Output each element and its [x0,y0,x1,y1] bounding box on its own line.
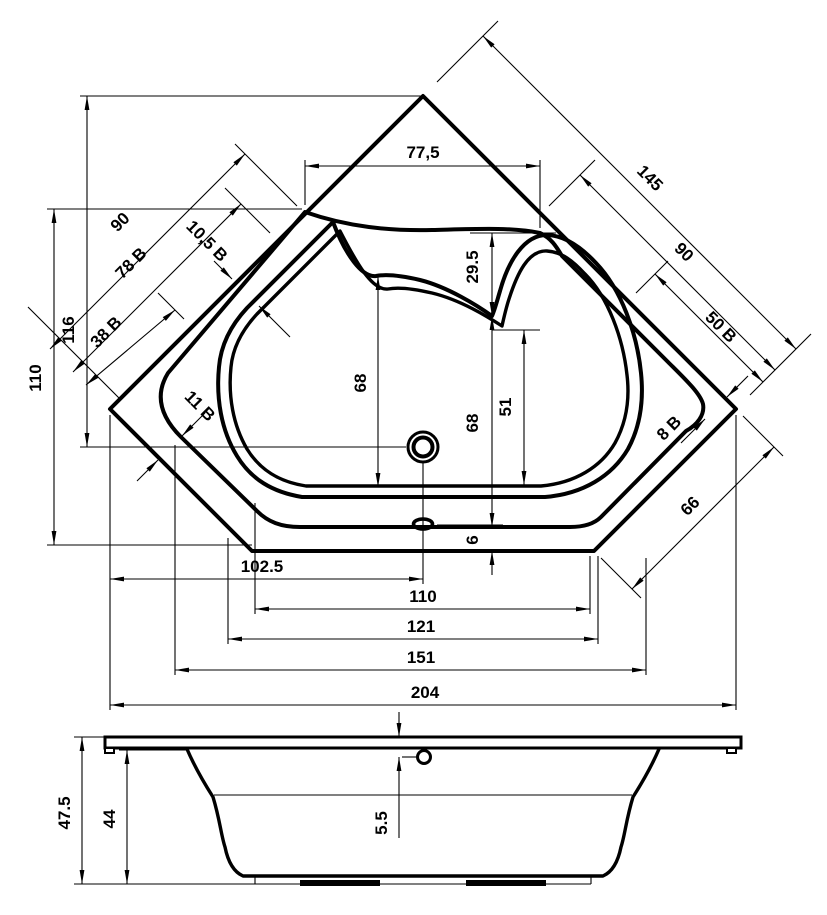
dim-shell-width: 121 [228,617,598,639]
dim-overflow-drop: 5.5 [372,712,399,838]
dim-label-overall-width: 204 [411,683,440,702]
base [255,877,591,886]
dim-inner-width: 151 [175,648,646,670]
dim-lobe-to-saddle: 29.5 [463,233,492,316]
shell-contour [161,212,704,527]
dim-drain-offset-x: 102.5 [110,557,423,579]
dim-label-left-edge-38: 38 B [87,313,126,352]
dim-label-neck-to-bottom: 110 [26,364,45,391]
body-profile [187,749,659,876]
dim-apex-to-drain: 116 [59,96,87,447]
drawing-sheet: 77,5 145 90 50 B 8 B 66 90 78 [0,0,827,915]
dim-top-span: 77,5 [305,143,540,166]
dim-label-saddle-to-base: 68 [463,414,482,433]
dim-label-well-width: 110 [409,587,436,606]
dim-label-shell-height: 44 [100,809,119,828]
dim-label-shell-width: 121 [407,617,435,636]
dim-label-base-offset: 6 [463,535,482,544]
drain [408,432,438,462]
dim-lower-right-edge: 66 [632,447,774,589]
side-drain [402,751,431,764]
dim-overall-width: 204 [110,683,736,705]
dim-label-top-span: 77,5 [406,143,439,162]
dim-label-left-edge-90: 90 [107,209,134,236]
dim-total-height: 47.5 [55,737,82,884]
dim-label-lobe-to-saddle: 29.5 [463,250,482,283]
dim-label-total-height: 47.5 [55,796,74,829]
plan-view: 77,5 145 90 50 B 8 B 66 90 78 [26,21,811,710]
dim-label-right-edge-50: 50 B [701,308,740,347]
dim-right-edge-total: 145 [483,36,796,349]
dim-label-inner-width: 151 [407,648,435,667]
dim-label-apex-to-drain: 116 [59,316,78,343]
well-inner-contour [230,231,628,486]
dim-label-overflow-drop: 5.5 [372,811,391,835]
side-view: 47.5 44 5.5 [55,712,741,886]
dim-label-left-gap-10-5: 10,5 B [182,217,231,266]
technical-drawing: 77,5 145 90 50 B 8 B 66 90 78 [0,0,827,915]
dim-label-well-left-depth: 68 [351,374,370,393]
dim-neck-to-bottom: 110 [26,209,54,545]
dim-label-lower-right-edge: 66 [677,493,704,520]
dim-label-right-edge-total: 145 [633,161,666,194]
dim-label-seat-to-bottom: 51 [496,398,515,417]
dim-right-edge-90: 90 [580,175,775,370]
dim-shell-height: 44 [100,750,127,884]
dim-base-offset: 6 [463,535,492,575]
dim-label-left-edge-78: 78 B [112,244,151,283]
dim-left-edge-38: 38 B [86,310,175,385]
dim-label-drain-offset-x: 102.5 [241,557,284,576]
dim-seat-to-bottom: 51 [496,330,524,485]
dim-well-width: 110 [255,587,590,609]
dim-label-left-gap-11: 11 B [181,387,219,425]
dim-label-right-edge-90: 90 [670,239,697,266]
dim-well-left-depth: 68 [351,276,378,487]
